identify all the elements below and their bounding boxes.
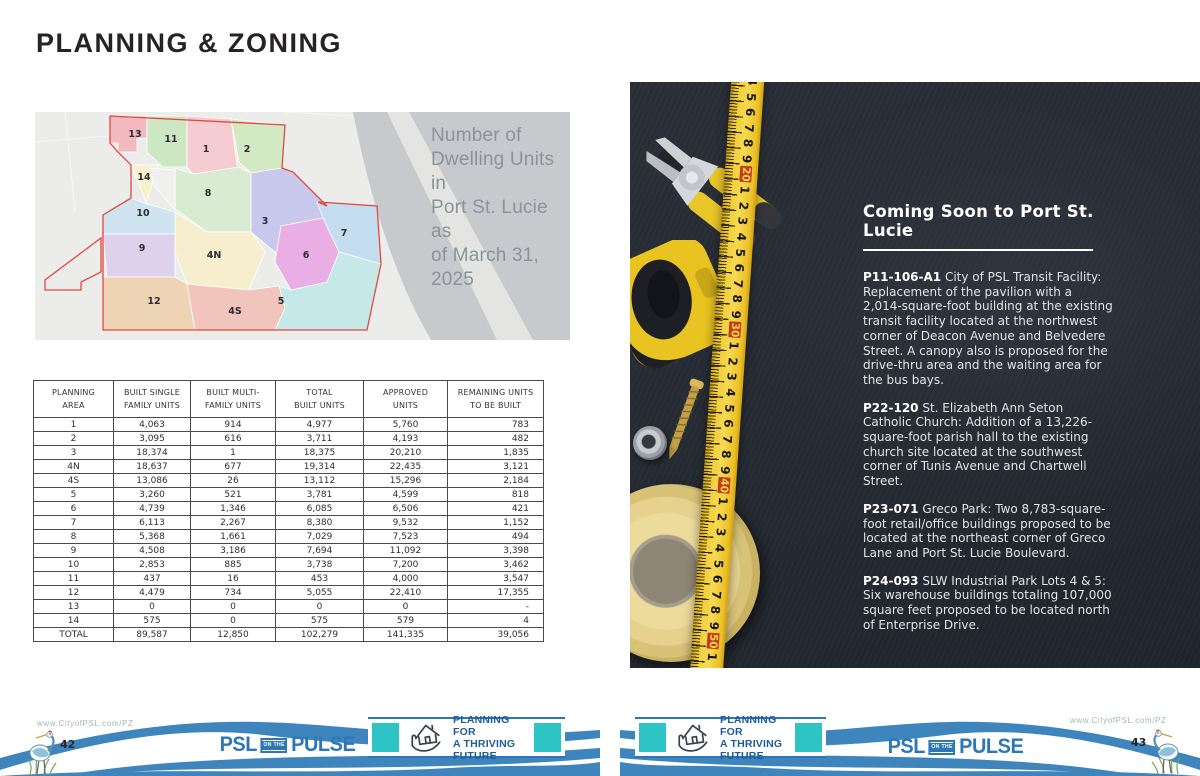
- map-area-label: 13: [128, 129, 141, 140]
- column-header: PLANNINGAREA: [34, 381, 114, 418]
- map-area-label: 12: [147, 296, 160, 307]
- map-area-label: 9: [139, 243, 146, 254]
- logo-psl-text: PSL: [220, 733, 257, 757]
- column-header: BUILT SINGLEFAMILY UNITS: [114, 381, 191, 418]
- tape-number: 1: [726, 337, 741, 354]
- house-in-hand-icon: [674, 720, 714, 756]
- tape-number: 6: [732, 260, 747, 277]
- magazine-spread: PLANNING & ZONING: [0, 0, 1200, 776]
- table-total-row: TOTAL89,58712,850102,279141,33539,056: [34, 628, 544, 642]
- project-item: P24-093 SLW Industrial Park Lots 4 & 5: …: [863, 574, 1113, 633]
- dwelling-units-table: PLANNINGAREABUILT SINGLEFAMILY UNITSBUIL…: [33, 380, 544, 642]
- tape-number: 5: [711, 555, 726, 572]
- project-list: P11-106-A1 City of PSL Transit Facility:…: [863, 270, 1115, 632]
- heron-icon-right: [1146, 728, 1186, 776]
- badge-teal-square: [639, 723, 666, 752]
- psl-pulse-logo-right: PSL ON THE PULSE: [888, 735, 1024, 759]
- table-header-row: PLANNINGAREABUILT SINGLEFAMILY UNITSBUIL…: [34, 381, 544, 418]
- tape-number: 6: [721, 415, 736, 432]
- column-header: BUILT MULTI-FAMILY UNITS: [191, 381, 276, 418]
- table-row: 85,3681,6617,0297,523494: [34, 530, 544, 544]
- tape-number: 20: [739, 165, 752, 182]
- table-row: 4N18,63767719,31422,4353,121: [34, 460, 544, 474]
- column-header: APPROVEDUNITS: [364, 381, 448, 418]
- table-row: 53,2605213,7814,599818: [34, 488, 544, 502]
- heron-icon-left: [22, 729, 62, 776]
- badge-teal-square: [372, 723, 399, 752]
- badge-text: PLANNING FOR A THRIVING FUTURE: [453, 714, 534, 762]
- table-row: 1457505755794: [34, 614, 544, 628]
- page-number-left: 42: [60, 738, 75, 751]
- table-row: 23,0956163,7114,193482: [34, 432, 544, 446]
- tools-photo: 4567892012345678930123456789401234567895…: [630, 82, 1200, 668]
- tape-number: 3: [713, 524, 728, 541]
- coming-soon-section: Coming Soon to Port St. Lucie P11-106-A1…: [863, 202, 1115, 645]
- badge-text: PLANNING FOR A THRIVING FUTURE: [720, 714, 795, 762]
- tape-number: 3: [724, 368, 739, 385]
- heading-underline: [863, 249, 1093, 251]
- badge-teal-square: [534, 723, 561, 752]
- planning-areas-map: 13111214810394N67124S5 Number of Dwellin…: [35, 112, 570, 340]
- map-area-label: 5: [278, 296, 285, 307]
- psl-pulse-logo-left: PSL ON THE PULSE: [220, 733, 356, 757]
- website-url-left: www.CityofPSL.com/PZ: [37, 719, 133, 728]
- tape-number: 3: [735, 213, 750, 230]
- map-area-label: 6: [303, 250, 310, 261]
- website-url-right: www.CityofPSL.com/PZ: [1070, 716, 1166, 725]
- tape-number: 6: [710, 571, 725, 588]
- house-in-hand-icon: [407, 720, 447, 756]
- tape-number: 1: [737, 182, 752, 199]
- tape-number: 5: [744, 88, 759, 105]
- map-area-label: 2: [244, 144, 251, 155]
- table-row: 4S13,0862613,11215,2962,184: [34, 474, 544, 488]
- tape-number: 4: [712, 540, 727, 557]
- map-area-label: 1: [203, 144, 210, 155]
- table-row: 11437164534,0003,547: [34, 572, 544, 586]
- table-row: 94,5083,1867,69411,0923,398: [34, 544, 544, 558]
- table-row: 76,1132,2678,3809,5321,152: [34, 516, 544, 530]
- map-area-label: 4S: [228, 306, 242, 317]
- map-area-label: 3: [262, 216, 269, 227]
- table-row: 318,374118,37520,2101,835: [34, 446, 544, 460]
- tape-number: 4: [723, 384, 738, 401]
- logo-onthe-box: ON THE: [929, 740, 956, 755]
- tape-number: 8: [729, 291, 744, 308]
- table-row: 130000-: [34, 600, 544, 614]
- project-item: P22-120 St. Elizabeth Ann Seton Catholic…: [863, 401, 1113, 489]
- tape-number: 6: [743, 104, 758, 121]
- project-item: P11-106-A1 City of PSL Transit Facility:…: [863, 270, 1113, 388]
- tape-number: 4: [734, 228, 749, 245]
- column-header: TOTALBUILT UNITS: [276, 381, 364, 418]
- map-area-label: 4N: [207, 250, 222, 261]
- table-row: 102,8538853,7387,2003,462: [34, 558, 544, 572]
- washer: [633, 426, 667, 460]
- project-item: P23-071 Greco Park: Two 8,783-square-foo…: [863, 502, 1113, 561]
- thriving-future-badge-left: PLANNING FOR A THRIVING FUTURE: [368, 717, 565, 758]
- logo-pulse-text: PULSE: [291, 733, 355, 757]
- map-area-label: 7: [341, 228, 348, 239]
- page-title: PLANNING & ZONING: [36, 28, 342, 59]
- tape-number: 1: [704, 649, 719, 666]
- map-area-label: 14: [137, 172, 151, 183]
- tape-number: 8: [740, 135, 755, 152]
- tape-number: 8: [719, 446, 734, 463]
- coming-soon-heading: Coming Soon to Port St. Lucie: [863, 202, 1115, 240]
- tape-number: 30: [728, 321, 741, 338]
- table-row: 124,4797345,05522,41017,355: [34, 586, 544, 600]
- tape-number: 50: [707, 632, 720, 649]
- tape-number: 5: [722, 400, 737, 417]
- table-row: 14,0639144,9775,760783: [34, 418, 544, 432]
- map-area-label: 11: [164, 134, 177, 145]
- logo-onthe-box: ON THE: [261, 738, 288, 753]
- tape-number: 8: [708, 602, 723, 619]
- page-number-right: 43: [1131, 736, 1146, 749]
- table-row: 64,7391,3466,0856,506421: [34, 502, 544, 516]
- badge-teal-square: [795, 723, 822, 752]
- map-caption: Number of Dwelling Units in Port St. Luc…: [431, 124, 571, 292]
- tape-number: 40: [717, 476, 730, 493]
- thriving-future-badge-right: PLANNING FOR A THRIVING FUTURE: [635, 717, 826, 758]
- tape-number: 5: [733, 244, 748, 261]
- tape-number: 1: [715, 493, 730, 510]
- map-area-label: 8: [205, 188, 212, 199]
- map-area-label: 10: [136, 208, 150, 219]
- column-header: REMAINING UNITSTO BE BUILT: [448, 381, 544, 418]
